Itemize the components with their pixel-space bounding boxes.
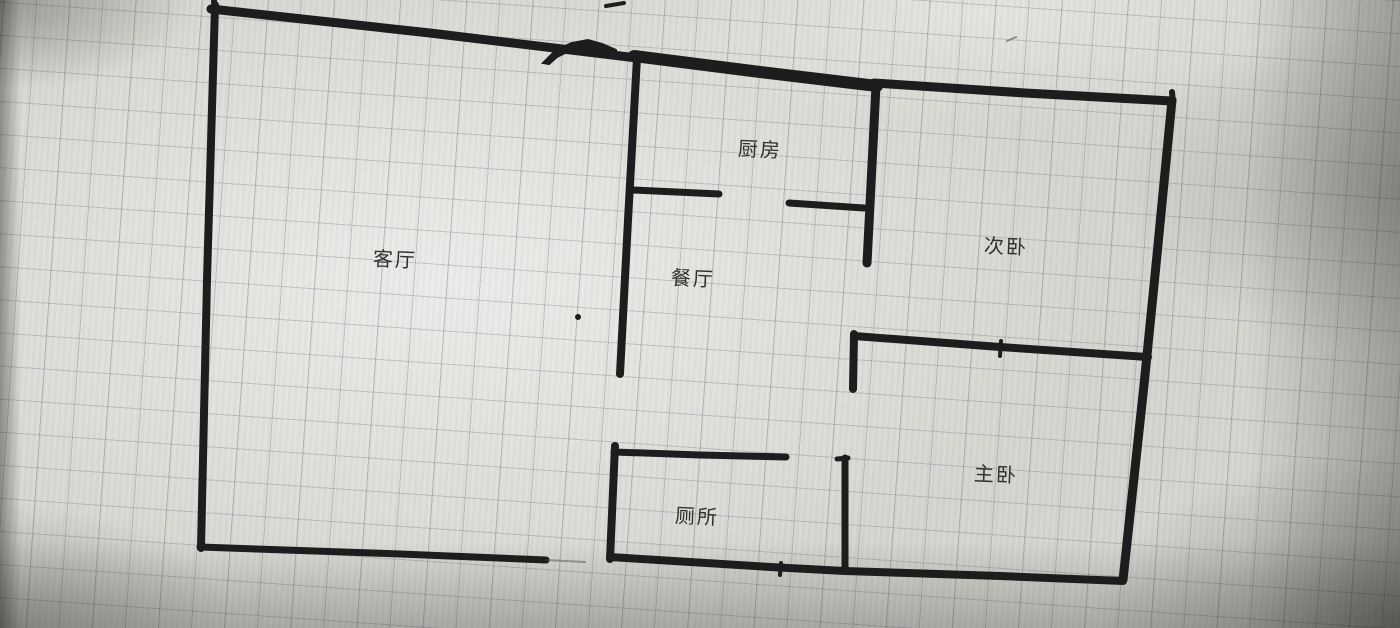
room-label-toilet: 厕所 — [674, 500, 719, 531]
floor-plan-photo: 客厅餐厅厨房次卧主卧厕所 — [0, 0, 1400, 628]
room-labels: 客厅餐厅厨房次卧主卧厕所 — [0, 0, 1400, 628]
room-label-living-room: 客厅 — [372, 243, 417, 274]
room-label-dining-room: 餐厅 — [670, 262, 715, 293]
room-label-second-bedroom: 次卧 — [983, 230, 1028, 261]
room-label-kitchen: 厨房 — [737, 133, 782, 164]
room-label-master-bedroom: 主卧 — [973, 458, 1018, 489]
